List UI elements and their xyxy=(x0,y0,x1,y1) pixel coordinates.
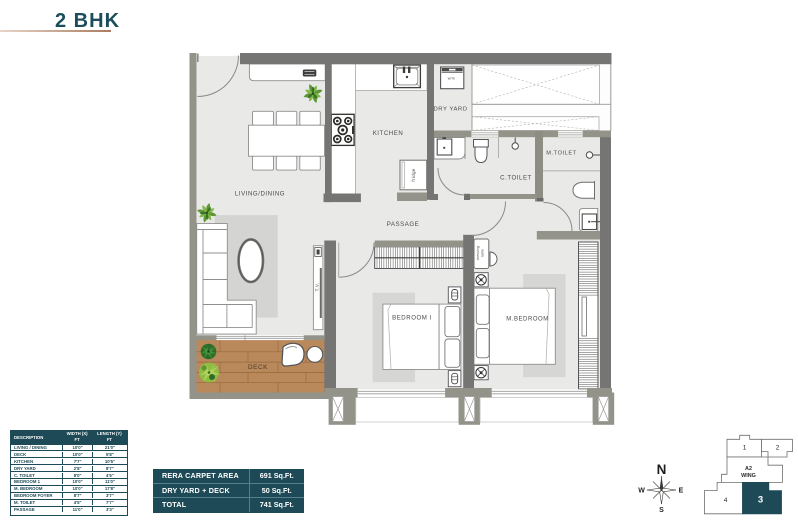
svg-text:WING: WING xyxy=(741,473,756,479)
svg-text:N: N xyxy=(657,462,667,477)
svg-text:PASSAGE: PASSAGE xyxy=(387,221,420,228)
svg-text:BEDROOM I: BEDROOM I xyxy=(392,315,432,322)
svg-text:KITCHEN: KITCHEN xyxy=(373,130,404,137)
svg-text:M.BEDROOM: M.BEDROOM xyxy=(506,317,549,323)
svg-text:2: 2 xyxy=(776,445,780,452)
svg-text:C.TOILET: C.TOILET xyxy=(500,175,532,182)
svg-text:DRY YARD: DRY YARD xyxy=(433,107,467,113)
svg-text:LIVING/DINING: LIVING/DINING xyxy=(235,191,285,198)
svg-text:T.V.: T.V. xyxy=(315,283,320,292)
svg-text:W: W xyxy=(638,488,645,495)
svg-text:E: E xyxy=(679,488,684,495)
svg-text:fridge: fridge xyxy=(411,168,416,181)
svg-text:S: S xyxy=(659,507,664,514)
svg-text:A2: A2 xyxy=(745,466,752,472)
svg-text:w/m: w/m xyxy=(448,77,455,81)
svg-text:dressing: dressing xyxy=(476,246,480,260)
svg-text:4: 4 xyxy=(724,497,728,504)
svg-text:table: table xyxy=(480,249,484,257)
svg-text:M.TOILET: M.TOILET xyxy=(546,151,577,157)
svg-text:3: 3 xyxy=(758,495,763,506)
svg-text:1: 1 xyxy=(743,445,747,452)
svg-text:DECK: DECK xyxy=(248,364,268,371)
